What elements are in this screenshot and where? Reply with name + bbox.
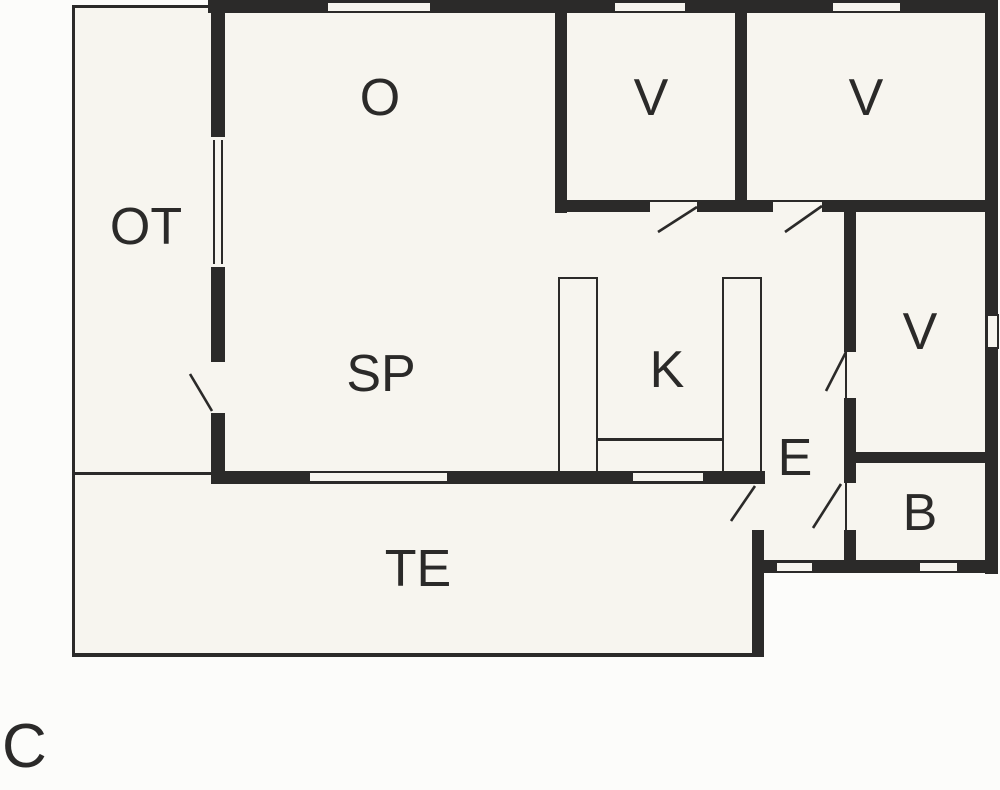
door-swing-entrance	[731, 486, 755, 521]
room-label-e: E	[778, 432, 813, 484]
room-label-b: B	[903, 487, 938, 539]
room-label-ot: OT	[110, 201, 182, 253]
room-label-sp: SP	[346, 348, 415, 400]
door-swing-v3	[826, 352, 846, 391]
room-label-o: O	[360, 72, 400, 124]
floor-plan-canvas: O V V OT SP K V E B TE C	[0, 0, 1000, 790]
room-label-v3: V	[903, 306, 938, 358]
room-label-v2: V	[849, 72, 884, 124]
door-swing-v2	[785, 206, 822, 232]
door-swing-b	[813, 484, 841, 528]
plan-variant-label: C	[2, 716, 47, 778]
room-label-te: TE	[385, 543, 451, 595]
door-swing-ot	[190, 374, 212, 411]
door-swing-v1	[658, 207, 697, 232]
room-label-v1: V	[634, 72, 669, 124]
room-label-k: K	[650, 344, 685, 396]
